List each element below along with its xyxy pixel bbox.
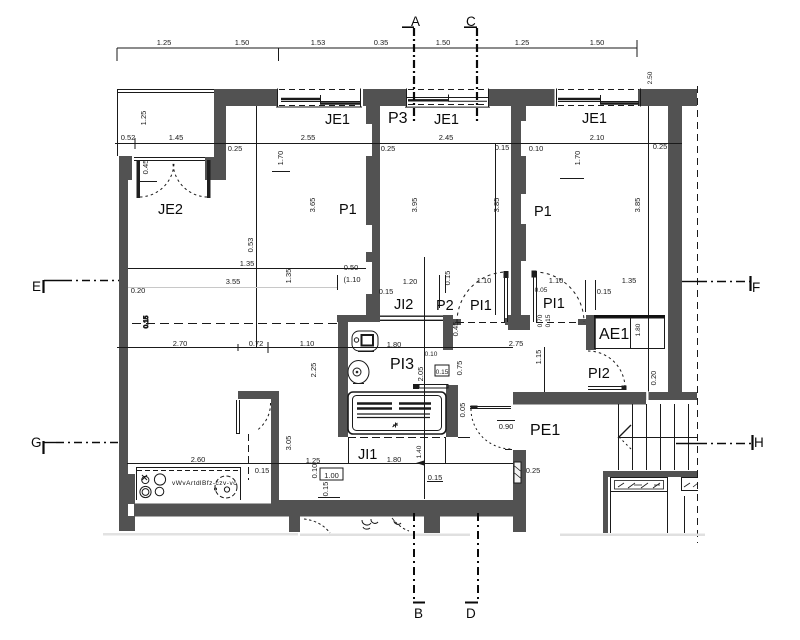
svg-text:1.15: 1.15 bbox=[534, 350, 543, 365]
svg-text:1.50: 1.50 bbox=[590, 38, 605, 47]
svg-text:0.52: 0.52 bbox=[121, 133, 136, 142]
svg-text:2.45: 2.45 bbox=[439, 133, 454, 142]
svg-text:B: B bbox=[414, 606, 423, 621]
svg-text:0.15: 0.15 bbox=[443, 271, 452, 286]
svg-text:PI1: PI1 bbox=[543, 296, 565, 312]
svg-text:JE1: JE1 bbox=[582, 111, 607, 127]
svg-text:0.25: 0.25 bbox=[653, 142, 668, 151]
svg-text:2.25: 2.25 bbox=[309, 363, 318, 378]
svg-text:2.75: 2.75 bbox=[509, 339, 524, 348]
svg-text:0.05: 0.05 bbox=[458, 403, 467, 418]
svg-text:3.65: 3.65 bbox=[308, 198, 317, 213]
svg-text:0.45: 0.45 bbox=[141, 160, 150, 175]
svg-text:1.50: 1.50 bbox=[235, 38, 250, 47]
svg-text:2.50: 2.50 bbox=[647, 71, 654, 84]
svg-text:2.60: 2.60 bbox=[191, 455, 206, 464]
svg-text:0.10: 0.10 bbox=[310, 464, 319, 479]
svg-text:0.75: 0.75 bbox=[455, 361, 464, 376]
svg-text:1.45: 1.45 bbox=[169, 133, 184, 142]
svg-text:0.53: 0.53 bbox=[246, 238, 255, 253]
svg-text:PI3: PI3 bbox=[390, 356, 414, 373]
svg-text:PE1: PE1 bbox=[530, 422, 560, 439]
svg-text:0.15: 0.15 bbox=[321, 482, 330, 497]
svg-text:2.55: 2.55 bbox=[301, 133, 316, 142]
svg-text:1.25: 1.25 bbox=[139, 111, 148, 126]
svg-text:C: C bbox=[466, 14, 476, 29]
svg-text:0.15: 0.15 bbox=[597, 287, 612, 296]
svg-text:0.15: 0.15 bbox=[428, 473, 443, 482]
svg-text:JI2: JI2 bbox=[394, 297, 413, 313]
svg-text:0.15: 0.15 bbox=[495, 143, 510, 152]
svg-text:1.53: 1.53 bbox=[311, 38, 326, 47]
svg-text:1.40: 1.40 bbox=[416, 445, 423, 458]
svg-text:2.70: 2.70 bbox=[173, 339, 188, 348]
svg-text:1.80: 1.80 bbox=[635, 323, 642, 336]
svg-text:P2: P2 bbox=[436, 298, 454, 314]
svg-text:P3: P3 bbox=[388, 110, 408, 127]
svg-text:3.85: 3.85 bbox=[492, 198, 501, 213]
svg-text:1.70: 1.70 bbox=[573, 151, 582, 166]
svg-text:G: G bbox=[31, 435, 42, 450]
svg-text:JE2: JE2 bbox=[158, 202, 183, 218]
svg-text:1.35: 1.35 bbox=[284, 269, 293, 284]
svg-text:0.25: 0.25 bbox=[381, 144, 396, 153]
svg-text:0.05: 0.05 bbox=[535, 287, 548, 294]
svg-text:0.10: 0.10 bbox=[529, 144, 544, 153]
svg-text:1.50: 1.50 bbox=[436, 38, 451, 47]
svg-text:1.80: 1.80 bbox=[387, 340, 402, 349]
svg-text:3.05: 3.05 bbox=[284, 436, 293, 451]
svg-text:1.80: 1.80 bbox=[387, 455, 402, 464]
svg-text:1.25: 1.25 bbox=[157, 38, 172, 47]
svg-text:0.10: 0.10 bbox=[425, 351, 438, 358]
svg-text:1.20: 1.20 bbox=[403, 277, 418, 286]
svg-text:0.35: 0.35 bbox=[374, 38, 389, 47]
svg-text:0.25: 0.25 bbox=[228, 144, 243, 153]
svg-text:(1.10: (1.10 bbox=[343, 275, 360, 284]
svg-text:0.15: 0.15 bbox=[143, 315, 150, 328]
svg-text:H: H bbox=[754, 435, 764, 450]
svg-text:A: A bbox=[411, 14, 420, 29]
svg-text:0.50: 0.50 bbox=[344, 263, 359, 272]
svg-text:0.70: 0.70 bbox=[537, 314, 544, 327]
svg-text:2.05: 2.05 bbox=[416, 367, 425, 382]
svg-text:vWvArtdlBfz-czv-vc: vWvArtdlBfz-czv-vc bbox=[172, 480, 237, 487]
svg-text:D: D bbox=[466, 606, 476, 621]
svg-text:0.20: 0.20 bbox=[131, 286, 146, 295]
svg-text:1.35: 1.35 bbox=[240, 259, 255, 268]
svg-text:2.10: 2.10 bbox=[590, 133, 605, 142]
svg-text:1.25: 1.25 bbox=[306, 456, 321, 465]
svg-text:P1: P1 bbox=[534, 204, 552, 220]
svg-text:F: F bbox=[752, 280, 760, 295]
svg-text:1.70: 1.70 bbox=[276, 151, 285, 166]
svg-text:0.15: 0.15 bbox=[379, 287, 394, 296]
svg-text:PI1: PI1 bbox=[470, 298, 492, 314]
svg-text:1.25: 1.25 bbox=[515, 38, 530, 47]
svg-text:1.35: 1.35 bbox=[622, 276, 637, 285]
svg-text:E: E bbox=[32, 279, 41, 294]
svg-text:JE1: JE1 bbox=[434, 112, 459, 128]
svg-text:3.95: 3.95 bbox=[410, 198, 419, 213]
svg-text:3.85: 3.85 bbox=[633, 198, 642, 213]
svg-text:JI1: JI1 bbox=[358, 447, 377, 463]
svg-text:0.90: 0.90 bbox=[499, 422, 514, 431]
svg-text:0.15: 0.15 bbox=[255, 466, 270, 475]
svg-text:0.45: 0.45 bbox=[451, 322, 460, 337]
svg-text:1.10: 1.10 bbox=[549, 276, 564, 285]
svg-text:0.15: 0.15 bbox=[545, 314, 552, 327]
svg-text:3.55: 3.55 bbox=[226, 277, 241, 286]
svg-text:0.15: 0.15 bbox=[436, 369, 449, 376]
svg-text:1.10: 1.10 bbox=[477, 276, 492, 285]
svg-text:1.10: 1.10 bbox=[300, 339, 315, 348]
svg-text:0.25: 0.25 bbox=[526, 466, 541, 475]
svg-text:0.20: 0.20 bbox=[649, 371, 658, 386]
svg-text:AE1: AE1 bbox=[599, 326, 629, 343]
svg-text:JE1: JE1 bbox=[325, 112, 350, 128]
svg-text:PI2: PI2 bbox=[588, 366, 610, 382]
svg-text:0.72: 0.72 bbox=[249, 339, 264, 348]
svg-text:P1: P1 bbox=[339, 202, 357, 218]
svg-text:1.00: 1.00 bbox=[324, 471, 339, 480]
